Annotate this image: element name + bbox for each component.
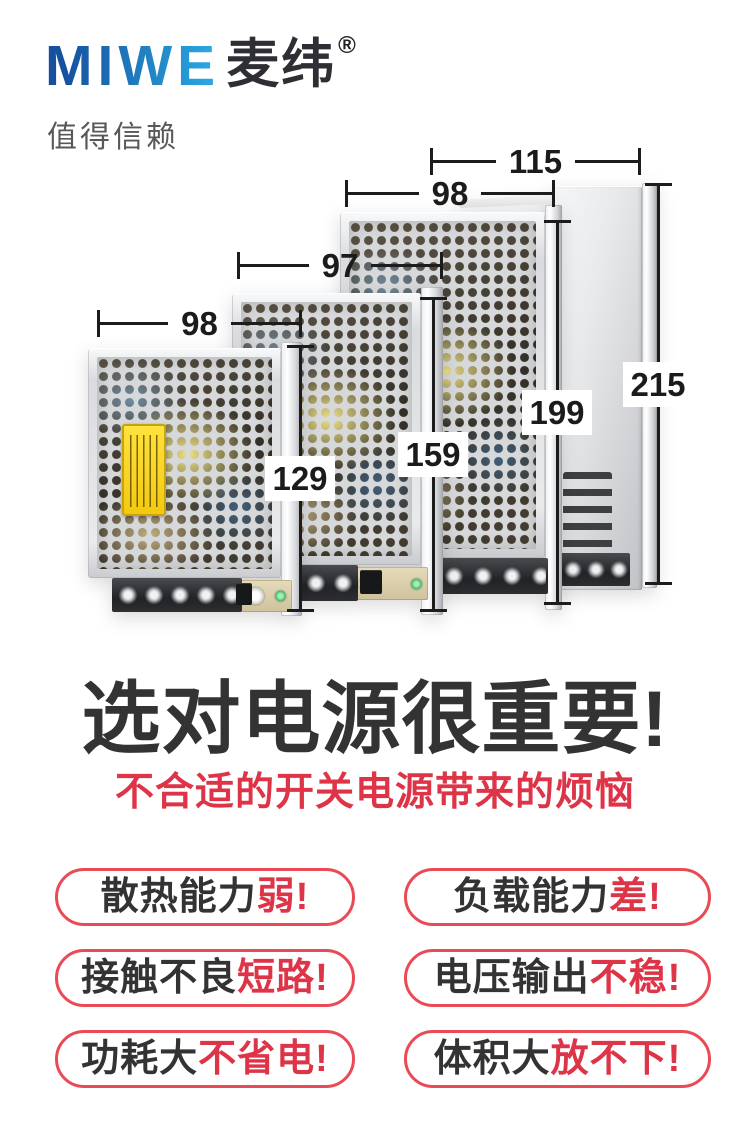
dim-line bbox=[657, 407, 660, 583]
dim-line bbox=[299, 501, 302, 609]
dim-tick bbox=[420, 609, 447, 612]
dim-line bbox=[556, 223, 559, 390]
dim-line bbox=[481, 192, 552, 195]
dim-width-medium-value: 97 bbox=[309, 249, 372, 282]
power-supply-size-diagram: 115 98 97 98 129 159 199 215 bbox=[0, 0, 750, 660]
dim-height-small: 129 bbox=[278, 345, 322, 612]
dim-line bbox=[371, 264, 440, 267]
pill-highlight: 短路! bbox=[237, 959, 329, 997]
psu-large-terminal-screws bbox=[440, 561, 546, 591]
dim-width-large: 98 bbox=[345, 176, 555, 210]
dim-height-slim-value: 215 bbox=[623, 362, 692, 407]
psu-small-terminal-block bbox=[112, 578, 242, 612]
psu-small-connector-component bbox=[236, 583, 252, 605]
pill-text: 接触不良 bbox=[81, 959, 237, 997]
dim-tick bbox=[287, 609, 314, 612]
pill-text: 功耗大 bbox=[81, 1040, 198, 1078]
dim-width-small: 98 bbox=[97, 306, 302, 340]
pill-highlight: 差! bbox=[609, 878, 662, 916]
pill-text: 体积大 bbox=[434, 1040, 551, 1078]
dim-line bbox=[556, 435, 559, 602]
dim-line bbox=[433, 160, 496, 163]
pain-point-pill-heat: 散热能力弱! bbox=[55, 868, 355, 926]
dim-tick bbox=[440, 252, 443, 279]
dim-width-medium: 97 bbox=[237, 248, 443, 282]
dim-tick bbox=[544, 602, 571, 605]
dim-height-large: 199 bbox=[535, 220, 579, 605]
dim-tick bbox=[645, 582, 672, 585]
dim-line bbox=[432, 477, 435, 609]
pill-highlight: 弱! bbox=[257, 878, 310, 916]
dim-width-slim: 115 bbox=[430, 144, 641, 178]
dim-line bbox=[231, 322, 299, 325]
pill-text: 散热能力 bbox=[101, 878, 257, 916]
pain-point-pill-contact: 接触不良短路! bbox=[55, 949, 355, 1007]
pill-highlight: 放不下! bbox=[551, 1040, 682, 1078]
dim-tick bbox=[299, 310, 302, 337]
dim-width-small-value: 98 bbox=[168, 307, 231, 340]
pain-point-pill-voltage: 电压输出不稳! bbox=[404, 949, 711, 1007]
dim-tick bbox=[552, 180, 555, 207]
dim-width-slim-value: 115 bbox=[496, 145, 575, 178]
psu-small-terminal-screws bbox=[114, 581, 240, 609]
pain-point-pill-size: 体积大放不下! bbox=[404, 1030, 711, 1088]
dim-height-medium: 159 bbox=[411, 297, 455, 612]
main-title: 选对电源很重要! bbox=[0, 678, 750, 761]
dim-line bbox=[432, 300, 435, 432]
pain-point-pill-power: 功耗大不省电! bbox=[55, 1030, 355, 1088]
dim-line bbox=[299, 348, 302, 456]
pill-highlight: 不省电! bbox=[198, 1040, 329, 1078]
pill-highlight: 不稳! bbox=[590, 959, 682, 997]
dim-line bbox=[100, 322, 168, 325]
pill-text: 电压输出 bbox=[434, 959, 590, 997]
pain-point-list: 散热能力弱! 负载能力差! 接触不良短路! 电压输出不稳! 功耗大不省电! 体积… bbox=[55, 868, 711, 1088]
psu-small-warning-label bbox=[122, 424, 166, 516]
dim-tick bbox=[638, 148, 641, 175]
dim-line bbox=[575, 160, 638, 163]
dim-height-slim: 215 bbox=[636, 183, 680, 585]
dim-line bbox=[240, 264, 309, 267]
pain-point-pill-load: 负载能力差! bbox=[404, 868, 711, 926]
dim-height-small-value: 129 bbox=[265, 456, 334, 501]
dim-line bbox=[657, 186, 660, 362]
dim-width-large-value: 98 bbox=[419, 177, 482, 210]
dim-line bbox=[348, 192, 419, 195]
psu-small-face bbox=[88, 348, 281, 578]
psu-medium-relay-component bbox=[360, 570, 382, 594]
dim-height-medium-value: 159 bbox=[398, 432, 467, 477]
pill-text: 负载能力 bbox=[453, 878, 609, 916]
dim-height-large-value: 199 bbox=[522, 390, 591, 435]
sub-title: 不合适的开关电源带来的烦恼 bbox=[0, 772, 750, 815]
